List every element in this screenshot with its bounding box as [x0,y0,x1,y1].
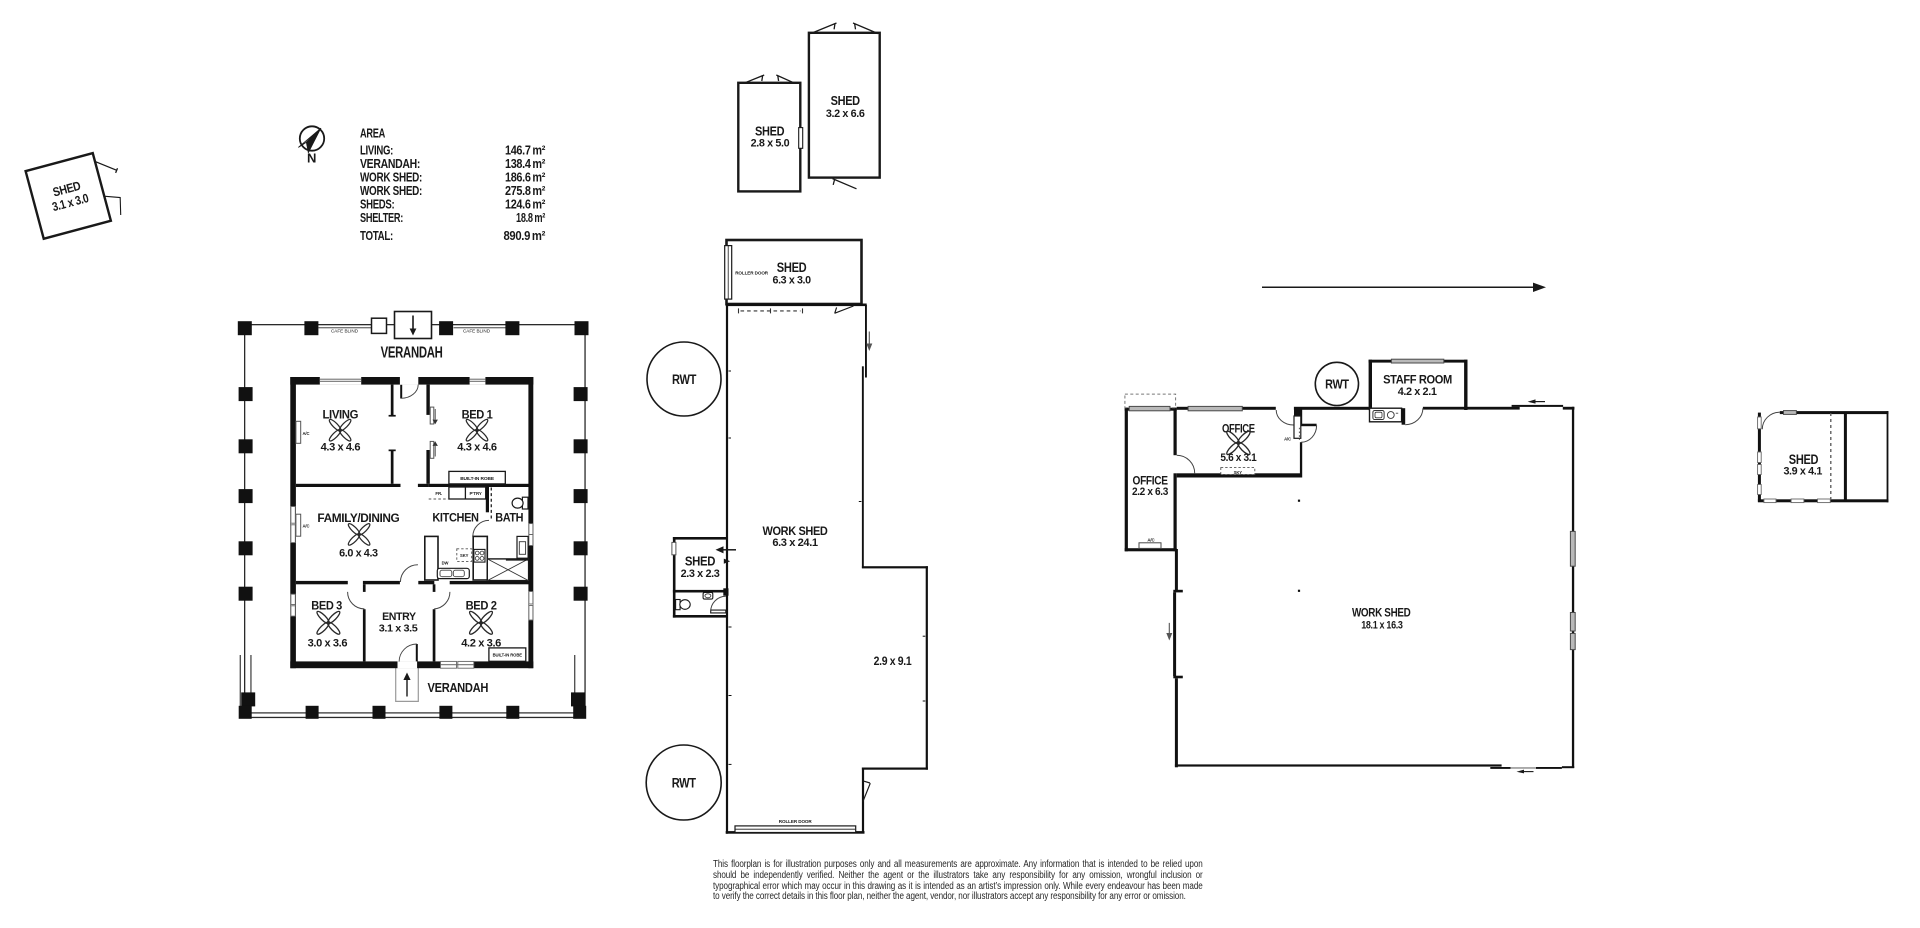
svg-text:4.2 x 2.1: 4.2 x 2.1 [1398,386,1437,398]
svg-text:SHED: SHED [777,260,807,275]
svg-text:BED 2: BED 2 [466,599,498,613]
svg-text:RWT: RWT [672,372,697,387]
svg-text:DW: DW [442,561,449,566]
svg-text:P’TRY: P’TRY [469,491,481,496]
svg-text:5.6 x 3.1: 5.6 x 3.1 [1220,452,1256,464]
svg-text:BED 3: BED 3 [311,599,342,613]
svg-text:BATH: BATH [495,510,523,524]
svg-text:6.0 x 4.3: 6.0 x 4.3 [339,547,378,559]
svg-text:FAMILY/DINING: FAMILY/DINING [317,511,399,525]
svg-text:WORK SHED: WORK SHED [763,524,828,538]
svg-text:STAFF ROOM: STAFF ROOM [1383,373,1452,387]
svg-text:RWT: RWT [672,775,697,790]
svg-text:BUILT-IN ROBE: BUILT-IN ROBE [460,476,495,482]
svg-text:WORK SHED: WORK SHED [1352,606,1411,620]
svg-text:2.2 x 6.3: 2.2 x 6.3 [1132,486,1168,498]
svg-text:CAFE BLIND: CAFE BLIND [331,329,359,334]
svg-text:18.8 m²: 18.8 m² [516,210,546,225]
svg-text:SKY: SKY [460,553,469,558]
svg-text:6.3 x 24.1: 6.3 x 24.1 [772,537,818,549]
svg-text:4.2 x 3.6: 4.2 x 3.6 [461,637,501,649]
svg-text:VERANDAH: VERANDAH [381,345,443,362]
svg-text:ENTRY: ENTRY [382,611,416,623]
svg-text:SHELTER:: SHELTER: [360,210,403,225]
svg-text:A/C: A/C [1147,538,1155,543]
svg-text:SHED: SHED [831,93,860,108]
svg-text:2.8 x 5.0: 2.8 x 5.0 [751,137,790,149]
svg-text:18.1 x 16.3: 18.1 x 16.3 [1361,619,1403,631]
svg-text:4.3 x 4.6: 4.3 x 4.6 [321,442,361,454]
svg-text:N: N [307,151,316,166]
svg-text:3.1 x 3.5: 3.1 x 3.5 [379,622,418,634]
svg-text:SKY: SKY [1234,470,1243,475]
svg-text:6.3 x 3.0: 6.3 x 3.0 [773,275,811,287]
svg-text:VERANDAH: VERANDAH [428,680,489,695]
svg-text:AREA: AREA [360,126,386,141]
svg-text:RWT: RWT [1325,377,1349,392]
svg-text:SHED: SHED [755,124,784,139]
svg-text:SHED: SHED [685,554,715,569]
svg-text:3.0 x 3.6: 3.0 x 3.6 [308,637,348,649]
svg-text:A/C: A/C [1284,437,1291,442]
svg-text:890.9 m²: 890.9 m² [504,228,546,243]
svg-text:BUILT-IN ROBE: BUILT-IN ROBE [493,653,523,658]
svg-text:A/C: A/C [303,524,310,529]
svg-text:A/C: A/C [303,431,310,436]
svg-text:CAFE BLIND: CAFE BLIND [463,329,491,334]
svg-text:3.2 x 6.6: 3.2 x 6.6 [826,108,865,120]
svg-text:ROLLER DOOR: ROLLER DOOR [779,819,813,824]
svg-text:3.9 x 4.1: 3.9 x 4.1 [1783,466,1823,478]
svg-text:LIVING: LIVING [323,408,359,422]
svg-text:2.3 x 2.3: 2.3 x 2.3 [681,568,720,580]
svg-text:4.3 x 4.6: 4.3 x 4.6 [457,442,497,454]
svg-text:TOTAL:: TOTAL: [360,228,393,243]
svg-text:FR.: FR. [435,491,442,496]
svg-text:KITCHEN: KITCHEN [432,510,478,524]
svg-text:ROLLER DOOR: ROLLER DOOR [735,271,769,276]
svg-text:2.9 x 9.1: 2.9 x 9.1 [874,654,912,668]
